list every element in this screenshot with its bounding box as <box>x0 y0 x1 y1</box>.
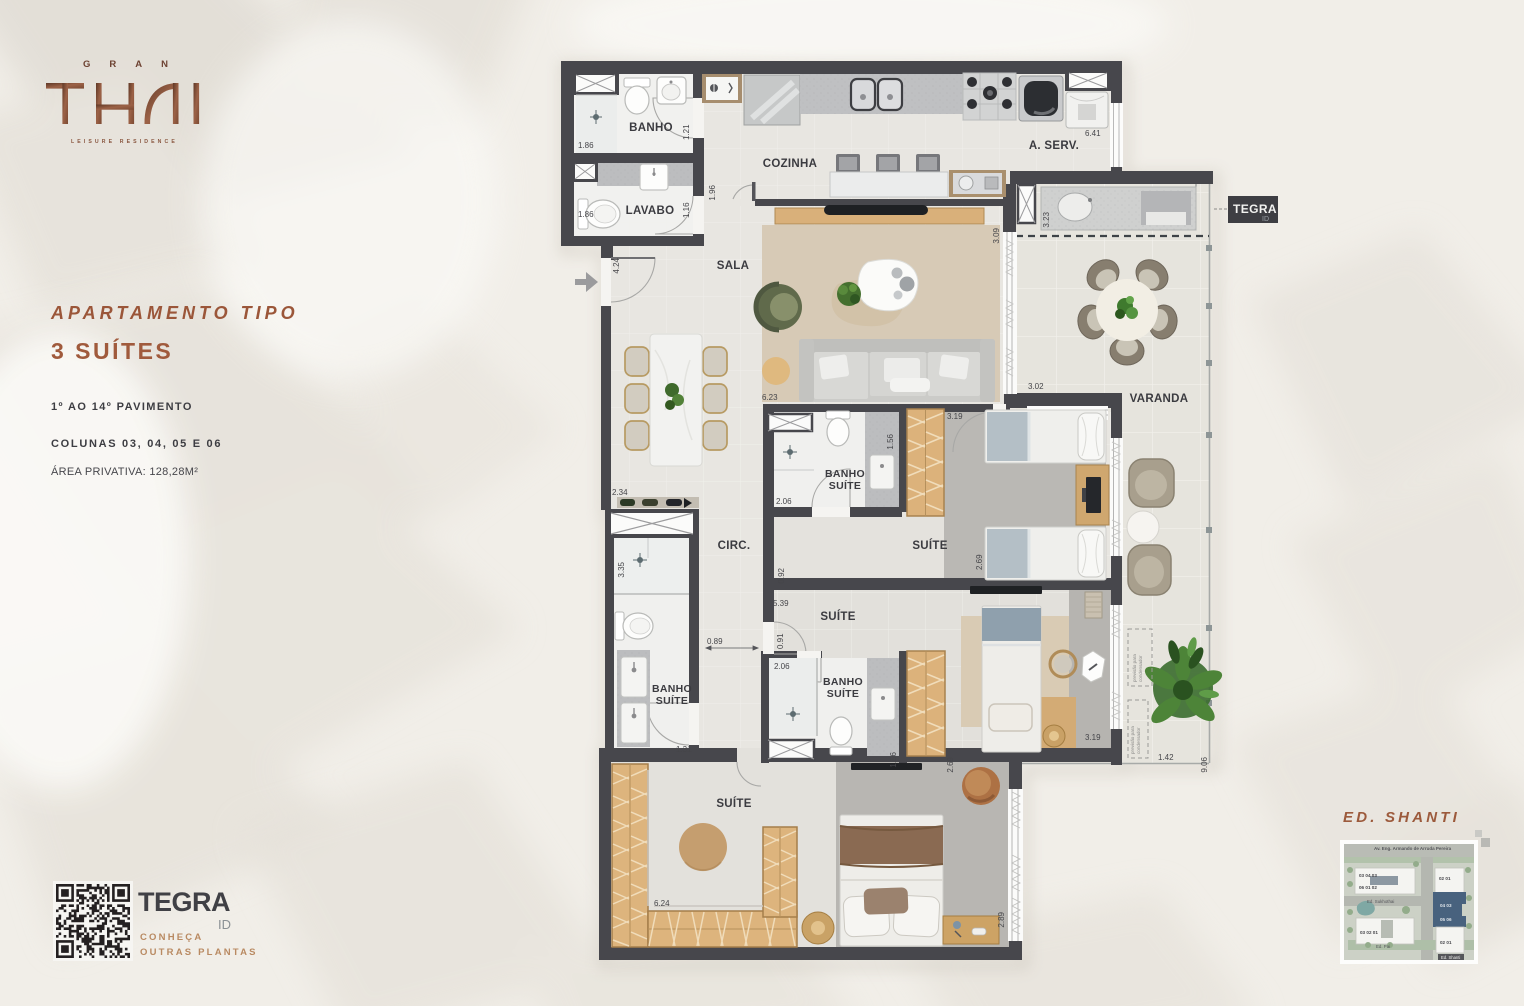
svg-text:SUÍTE: SUÍTE <box>912 539 947 552</box>
svg-text:3.19: 3.19 <box>1085 733 1101 742</box>
svg-text:GRAN: GRAN <box>83 59 187 70</box>
svg-text:6.41: 6.41 <box>1085 129 1101 138</box>
svg-text:3.09: 3.09 <box>992 227 1001 243</box>
svg-text:ÁREA PRIVATIVA: 128,28M²: ÁREA PRIVATIVA: 128,28M² <box>51 465 198 478</box>
svg-text:0.89: 0.89 <box>707 637 723 646</box>
svg-text:2.69: 2.69 <box>975 554 984 570</box>
svg-text:02 01: 02 01 <box>1439 876 1451 881</box>
svg-text:3.35: 3.35 <box>617 561 626 577</box>
svg-text:OUTRAS PLANTAS: OUTRAS PLANTAS <box>140 947 258 958</box>
svg-text:ID: ID <box>218 917 231 932</box>
svg-text:A. SERV.: A. SERV. <box>1029 140 1079 152</box>
svg-text:LAVABO: LAVABO <box>626 205 675 217</box>
svg-text:condensador: condensador <box>1138 655 1143 682</box>
svg-text:LEISURE RESIDENCE: LEISURE RESIDENCE <box>71 139 178 145</box>
svg-text:02 01: 02 01 <box>1440 940 1452 945</box>
svg-text:BANHO: BANHO <box>652 683 692 695</box>
svg-text:3.02: 3.02 <box>1028 382 1044 391</box>
svg-text:SUÍTE: SUÍTE <box>820 610 855 623</box>
svg-text:6.24: 6.24 <box>654 899 670 908</box>
svg-text:3 SUÍTES: 3 SUÍTES <box>51 337 173 364</box>
svg-text:previsão para: previsão para <box>1132 654 1137 682</box>
svg-text:APARTAMENTO TIPO: APARTAMENTO TIPO <box>50 303 299 323</box>
svg-text:COZINHA: COZINHA <box>763 158 818 170</box>
svg-text:Ed. Pai: Ed. Pai <box>1376 944 1390 949</box>
svg-text:COLUNAS 03, 04, 05 E 06: COLUNAS 03, 04, 05 E 06 <box>51 438 222 450</box>
svg-text:BANHO: BANHO <box>823 676 863 688</box>
svg-text:1.86: 1.86 <box>578 210 594 219</box>
svg-text:CONHEÇA: CONHEÇA <box>140 932 203 943</box>
svg-text:0.92: 0.92 <box>777 567 786 583</box>
svg-text:06 01 02: 06 01 02 <box>1359 885 1377 890</box>
svg-text:03 04 03: 03 04 03 <box>1359 873 1377 878</box>
svg-text:2.06: 2.06 <box>776 497 792 506</box>
svg-text:9.06: 9.06 <box>1200 756 1209 772</box>
svg-text:TEGRA: TEGRA <box>1233 202 1277 216</box>
svg-text:0.91: 0.91 <box>776 633 785 649</box>
svg-text:TEGRA: TEGRA <box>138 887 230 917</box>
svg-text:ID: ID <box>1262 216 1269 223</box>
svg-text:6.23: 6.23 <box>762 393 778 402</box>
svg-text:SUÍTE: SUÍTE <box>827 687 859 700</box>
svg-text:ED. SHANTI: ED. SHANTI <box>1343 809 1460 826</box>
svg-text:2.34: 2.34 <box>612 488 628 497</box>
svg-text:condensador: condensador <box>1136 727 1141 754</box>
svg-text:Ed. Sukhothai: Ed. Sukhothai <box>1367 899 1394 904</box>
svg-text:VARANDA: VARANDA <box>1130 393 1189 405</box>
svg-text:1.56: 1.56 <box>886 433 895 449</box>
svg-text:BANHO: BANHO <box>825 468 865 480</box>
svg-text:1.56: 1.56 <box>889 751 898 767</box>
svg-text:CIRC.: CIRC. <box>718 540 751 552</box>
svg-text:4.24: 4.24 <box>612 257 621 273</box>
svg-text:SUÍTE: SUÍTE <box>656 694 688 707</box>
svg-text:05 06: 05 06 <box>1440 917 1452 922</box>
svg-text:SUÍTE: SUÍTE <box>716 797 751 810</box>
svg-text:3.23: 3.23 <box>1042 211 1051 227</box>
svg-text:1.96: 1.96 <box>708 184 717 200</box>
svg-text:04 03: 04 03 <box>1440 903 1452 908</box>
svg-text:SUÍTE: SUÍTE <box>829 479 861 492</box>
svg-text:1.31: 1.31 <box>676 745 692 754</box>
svg-text:03 02 01: 03 02 01 <box>1360 930 1378 935</box>
svg-text:BANHO: BANHO <box>629 122 673 134</box>
svg-text:2.69: 2.69 <box>946 756 955 772</box>
svg-text:1.42: 1.42 <box>1158 753 1174 762</box>
svg-text:1.86: 1.86 <box>578 141 594 150</box>
svg-text:1.16: 1.16 <box>682 202 691 218</box>
svg-text:Ed. Shanti: Ed. Shanti <box>1441 955 1460 960</box>
svg-text:1.21: 1.21 <box>682 124 691 140</box>
svg-text:1º AO 14º PAVIMENTO: 1º AO 14º PAVIMENTO <box>51 401 193 413</box>
svg-text:previsão para: previsão para <box>1130 726 1135 754</box>
svg-text:Av. Eng. Armando de Arruda Per: Av. Eng. Armando de Arruda Pereira <box>1374 846 1452 851</box>
svg-text:2.06: 2.06 <box>774 662 790 671</box>
svg-text:3.19: 3.19 <box>947 412 963 421</box>
svg-text:SALA: SALA <box>717 260 750 272</box>
svg-text:2.89: 2.89 <box>997 911 1006 927</box>
svg-text:5.39: 5.39 <box>773 599 789 608</box>
